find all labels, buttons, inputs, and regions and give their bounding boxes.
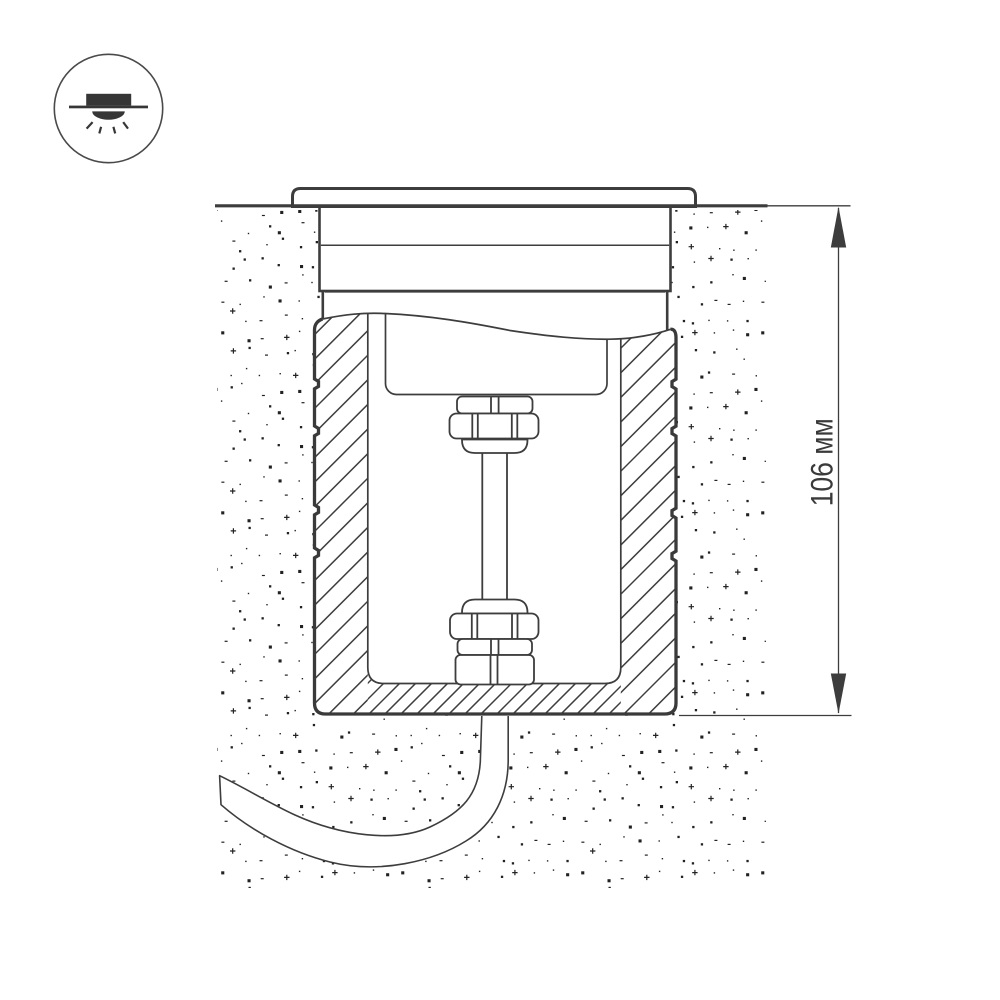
svg-text:106 мм: 106 мм <box>804 418 840 506</box>
